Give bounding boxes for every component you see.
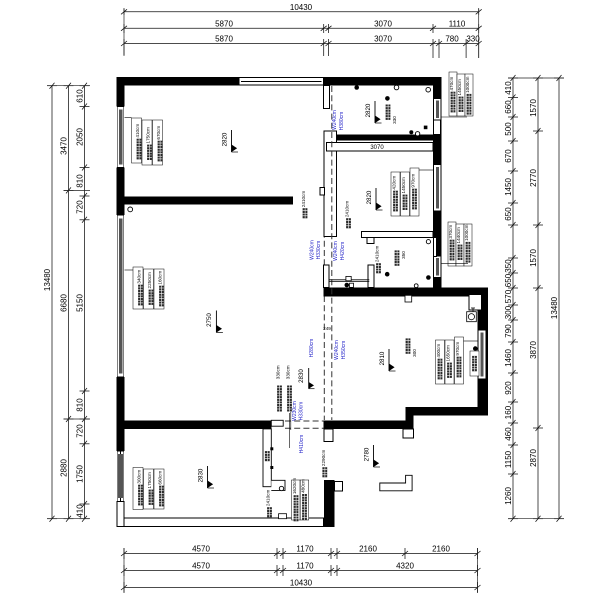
- svg-text:2780: 2780: [363, 447, 370, 461]
- svg-text:350: 350: [504, 259, 513, 273]
- svg-text:W240cm: W240cm: [334, 340, 340, 360]
- svg-text:2820: 2820: [221, 132, 228, 146]
- svg-text:5870: 5870: [215, 35, 233, 44]
- svg-text:3870: 3870: [529, 341, 538, 359]
- svg-text:670cm: 670cm: [156, 126, 161, 140]
- svg-text:2810: 2810: [379, 351, 386, 365]
- svg-text:810: 810: [76, 174, 85, 188]
- svg-text:1260: 1260: [504, 487, 513, 505]
- svg-text:720: 720: [76, 200, 85, 214]
- svg-text:H350cm: H350cm: [341, 341, 347, 360]
- svg-text:420cm: 420cm: [392, 176, 397, 190]
- svg-text:H280cm: H280cm: [309, 339, 315, 358]
- svg-text:570: 570: [504, 289, 513, 303]
- svg-text:160cm: 160cm: [158, 271, 163, 285]
- svg-text:460: 460: [504, 427, 513, 441]
- svg-text:1450: 1450: [504, 178, 513, 196]
- svg-text:10430: 10430: [290, 3, 313, 12]
- svg-text:1620cm: 1620cm: [292, 478, 297, 495]
- svg-text:1150: 1150: [504, 450, 513, 468]
- svg-text:330: 330: [466, 35, 480, 44]
- svg-text:1110: 1110: [449, 19, 466, 28]
- svg-text:650: 650: [504, 273, 513, 287]
- svg-text:1570: 1570: [529, 249, 538, 267]
- svg-text:330cm: 330cm: [276, 365, 281, 379]
- svg-text:13480: 13480: [550, 296, 559, 319]
- svg-text:1750cm: 1750cm: [146, 127, 151, 144]
- svg-text:2250cm: 2250cm: [147, 272, 152, 289]
- svg-text:1460: 1460: [504, 349, 513, 367]
- svg-text:1750cm: 1750cm: [147, 472, 152, 489]
- svg-text:10430: 10430: [290, 579, 313, 588]
- svg-text:2880: 2880: [60, 459, 69, 477]
- svg-text:2770: 2770: [529, 169, 538, 187]
- svg-text:2410cm: 2410cm: [345, 201, 350, 218]
- svg-text:W240cm: W240cm: [332, 110, 338, 130]
- svg-text:2160: 2160: [432, 545, 450, 554]
- svg-text:2290cm: 2290cm: [321, 450, 326, 467]
- svg-text:249: 249: [323, 326, 331, 331]
- svg-text:410: 410: [504, 81, 513, 95]
- svg-text:H420cm: H420cm: [340, 242, 346, 261]
- svg-text:2050: 2050: [76, 128, 85, 146]
- svg-text:2820: 2820: [365, 103, 372, 117]
- svg-text:H380cm: H380cm: [339, 112, 345, 131]
- svg-text:790: 790: [504, 324, 513, 338]
- svg-text:660: 660: [504, 100, 513, 114]
- svg-text:2820: 2820: [366, 190, 373, 204]
- svg-text:1000cm: 1000cm: [464, 224, 469, 241]
- svg-text:1650cm: 1650cm: [446, 345, 451, 362]
- svg-text:2410cm: 2410cm: [375, 246, 380, 263]
- svg-text:300cm: 300cm: [137, 470, 142, 484]
- svg-text:2870: 2870: [529, 449, 538, 467]
- svg-text:2830: 2830: [197, 468, 204, 482]
- svg-text:W230cm: W230cm: [292, 401, 298, 421]
- svg-text:970cm: 970cm: [411, 174, 416, 188]
- svg-text:300: 300: [412, 349, 417, 357]
- svg-text:650: 650: [504, 207, 513, 221]
- svg-text:13480: 13480: [43, 268, 52, 291]
- svg-text:970cm: 970cm: [455, 342, 460, 356]
- svg-text:3070: 3070: [374, 35, 392, 44]
- svg-text:1570: 1570: [529, 99, 538, 117]
- svg-text:2830: 2830: [298, 369, 305, 383]
- svg-text:330: 330: [392, 116, 397, 124]
- svg-text:780: 780: [445, 35, 459, 44]
- svg-text:350: 350: [401, 251, 406, 259]
- svg-text:4570: 4570: [192, 562, 210, 571]
- svg-text:160: 160: [504, 405, 513, 419]
- svg-text:2750: 2750: [206, 313, 213, 327]
- svg-text:330cm: 330cm: [286, 365, 291, 379]
- svg-text:660cm: 660cm: [158, 471, 163, 485]
- svg-text:410cm: 410cm: [135, 124, 140, 138]
- svg-text:1000cm: 1000cm: [465, 76, 470, 93]
- svg-text:1170: 1170: [296, 545, 314, 554]
- svg-text:1450cm: 1450cm: [457, 79, 462, 96]
- svg-text:340cm: 340cm: [137, 270, 142, 284]
- svg-text:5150: 5150: [76, 294, 85, 312]
- svg-text:370cm: 370cm: [448, 225, 453, 239]
- svg-text:H330cm: H330cm: [316, 241, 322, 260]
- svg-text:920: 920: [504, 381, 513, 395]
- svg-text:3070: 3070: [374, 19, 392, 28]
- svg-text:H330cm: H330cm: [298, 402, 304, 421]
- svg-text:H410cm: H410cm: [299, 435, 305, 454]
- svg-text:1440cm: 1440cm: [456, 227, 461, 244]
- svg-text:470cm: 470cm: [449, 77, 454, 91]
- svg-text:2410cm: 2410cm: [266, 490, 271, 507]
- svg-text:480cm: 480cm: [301, 479, 306, 493]
- svg-text:1750: 1750: [76, 465, 85, 483]
- svg-text:410: 410: [76, 504, 85, 518]
- svg-text:1450cm: 1450cm: [401, 177, 406, 194]
- svg-text:670: 670: [504, 149, 513, 163]
- svg-text:300: 300: [504, 305, 513, 319]
- svg-text:720: 720: [76, 424, 85, 438]
- svg-text:610: 610: [76, 89, 85, 103]
- svg-text:W240cm: W240cm: [310, 240, 316, 260]
- svg-text:1170: 1170: [296, 562, 314, 571]
- svg-text:4320: 4320: [396, 562, 414, 571]
- svg-text:3470: 3470: [60, 137, 69, 155]
- svg-text:2160: 2160: [359, 545, 377, 554]
- svg-text:400cm: 400cm: [436, 344, 441, 358]
- svg-text:4570: 4570: [192, 545, 210, 554]
- svg-text:500: 500: [504, 122, 513, 136]
- svg-text:W240cm: W240cm: [333, 241, 339, 261]
- svg-text:6680: 6680: [60, 294, 69, 312]
- svg-text:2410cm: 2410cm: [301, 191, 306, 208]
- svg-text:3070: 3070: [370, 145, 384, 151]
- svg-text:5870: 5870: [215, 19, 233, 28]
- svg-text:810: 810: [76, 398, 85, 412]
